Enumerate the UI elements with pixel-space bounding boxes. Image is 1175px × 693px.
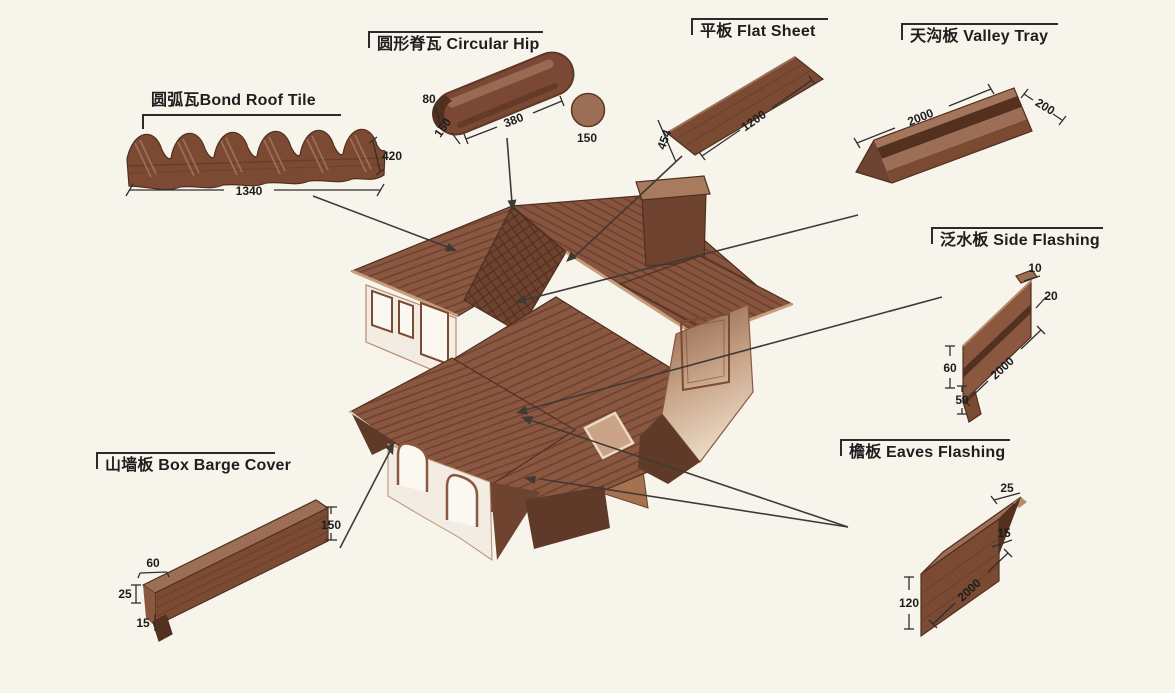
eaves-front-face — [921, 519, 999, 636]
dim-eaves-face-height: 120 — [899, 596, 919, 610]
window — [399, 301, 413, 338]
flat-sheet-grain — [685, 71, 810, 146]
label-side-flashing: 泛水板 Side Flashing — [931, 227, 1103, 250]
dim-hip-diameter: 150 — [577, 131, 597, 145]
arrow-box-barge-cover — [340, 451, 390, 548]
arrow-bond-roof-tile — [313, 196, 450, 248]
dim-eaves-top-flange: 25 — [1000, 481, 1014, 495]
dim-barge-bottom-lip: 15 — [136, 616, 150, 630]
dim-side-fold: 20 — [1044, 289, 1058, 303]
hip-end-view-circle — [572, 94, 605, 127]
window — [372, 291, 392, 332]
dim-tick — [854, 138, 860, 148]
side-flashing-illustration: 10 20 60 2000 50 — [943, 261, 1058, 422]
dim-eaves-edge-lip: 15 — [997, 526, 1011, 540]
eaves-flashing-illustration: 25 15 120 2000 — [899, 481, 1027, 636]
dim-side-lower-face: 50 — [955, 393, 969, 407]
dim-barge-face-height: 150 — [321, 518, 341, 532]
dim-bond-width: 420 — [382, 149, 402, 163]
label-side-flashing-text: 泛水板 Side Flashing — [940, 232, 1100, 249]
label-valley-tray: 天沟板 Valley Tray — [901, 23, 1058, 46]
box-barge-cover-illustration: 150 60 25 15 — [118, 500, 341, 641]
label-eaves-flashing-text: 檐板 Eaves Flashing — [849, 444, 1005, 461]
house-illustration — [350, 176, 792, 560]
label-box-barge-cover-text: 山墙板 Box Barge Cover — [105, 457, 291, 474]
label-bond-roof-tile: 圆弧瓦Bond Roof Tile — [142, 92, 341, 116]
catalog-page: 1340 420 80 150 380 150 454 — [0, 0, 1175, 693]
dim-tick — [138, 573, 140, 578]
dim-tick — [1059, 116, 1066, 125]
label-valley-tray-text: 天沟板 Valley Tray — [910, 28, 1048, 45]
entry-door — [421, 303, 448, 364]
label-circular-hip: 圆形脊瓦 Circular Hip — [368, 31, 543, 54]
flat-sheet-shape — [667, 57, 823, 155]
arrow-circular-hip — [507, 138, 512, 203]
dim-barge-side-lip: 25 — [118, 587, 132, 601]
dim-tick — [699, 152, 705, 160]
dim-line — [140, 572, 167, 573]
dim-line — [1053, 114, 1062, 120]
label-eaves-flashing: 檐板 Eaves Flashing — [840, 439, 1010, 462]
dim-tick — [988, 84, 994, 94]
dim-bond-length: 1340 — [236, 184, 263, 198]
label-flat-sheet: 平板 Flat Sheet — [691, 18, 828, 41]
circular-hip-illustration: 80 150 380 150 — [422, 64, 604, 145]
dim-hip-arc-height: 80 — [422, 92, 436, 106]
dim-line — [1024, 94, 1033, 100]
chimney-body — [642, 192, 706, 266]
arched-window — [398, 443, 427, 492]
label-bond-roof-tile-text: 圆弧瓦Bond Roof Tile — [151, 92, 316, 109]
label-flat-sheet-text: 平板 Flat Sheet — [700, 23, 816, 40]
label-circular-hip-text: 圆形脊瓦 Circular Hip — [377, 36, 540, 53]
flat-sheet-illustration: 454 1200 — [654, 57, 823, 162]
arched-window — [447, 475, 477, 527]
dim-barge-top-width: 60 — [146, 556, 160, 570]
dim-side-upper-face: 60 — [943, 361, 957, 375]
label-box-barge-cover: 山墙板 Box Barge Cover — [96, 452, 275, 475]
dim-side-top: 10 — [1028, 261, 1042, 275]
valley-tray-illustration: 2000 200 — [854, 84, 1066, 183]
bond-roof-tile-illustration: 1340 420 — [126, 129, 402, 198]
